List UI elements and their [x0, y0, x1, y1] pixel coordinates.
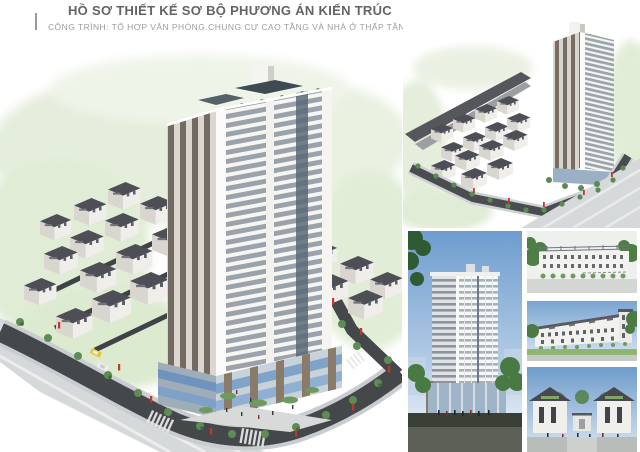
- villa-c-svg: [527, 367, 637, 452]
- main-aerial-svg: [0, 30, 402, 452]
- b-lawn: [527, 349, 637, 355]
- tower-photo-svg: [408, 231, 522, 452]
- c-center-structure: [572, 413, 592, 431]
- presentation-sheet: HỒ SƠ THIẾT KẾ SƠ BỘ PHƯƠNG ÁN KIẾN TRÚC…: [0, 0, 640, 452]
- rowhouse-b-svg: [527, 301, 637, 361]
- page-title: HỒ SƠ THIẾT KẾ SƠ BỘ PHƯƠNG ÁN KIẾN TRÚC: [0, 4, 460, 19]
- photo-tower: [430, 264, 500, 386]
- tower-perspective-rendering: [408, 231, 522, 452]
- tower-glass-strip: [296, 91, 308, 360]
- b-road: [527, 355, 637, 361]
- photo-ground-band: [408, 413, 522, 427]
- main-aerial-rendering: [0, 30, 402, 452]
- photo-podium: [426, 381, 506, 415]
- villa-rendering-c: [527, 367, 637, 452]
- a-shrubs: [541, 274, 626, 279]
- rowhouse-rendering-b: [527, 301, 637, 361]
- secondary-aerial-rendering: [403, 20, 640, 228]
- photo-foreground: [408, 427, 522, 452]
- c-path: [567, 437, 597, 452]
- rowhouse-a-svg: [527, 231, 637, 293]
- rowhouse-rendering-a: [527, 231, 637, 293]
- secondary-aerial-svg: [403, 20, 640, 228]
- a-ground: [527, 279, 637, 293]
- stray-mark: [35, 13, 37, 30]
- aerial-tower: [553, 22, 614, 186]
